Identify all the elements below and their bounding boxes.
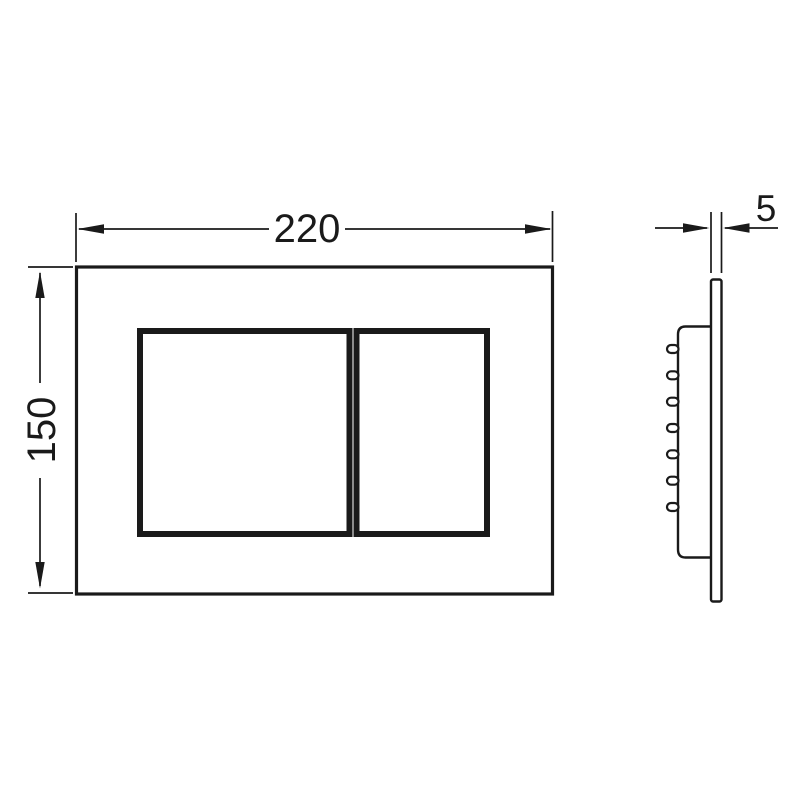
mounting-clip	[667, 477, 679, 485]
flush-plate-drawing: 220 150	[0, 0, 800, 800]
dimension-arrowhead-right	[525, 224, 552, 233]
mounting-bracket	[678, 327, 712, 558]
side-view: 5	[655, 188, 778, 602]
flush-button-small	[357, 331, 488, 534]
mounting-clip	[667, 503, 679, 511]
front-view: 220 150	[20, 207, 553, 594]
mounting-clip	[667, 424, 679, 432]
mounting-clip	[667, 450, 679, 458]
flush-button-large	[140, 331, 350, 534]
dimension-arrowhead-top	[35, 272, 44, 299]
width-dimension-label: 220	[274, 207, 341, 251]
mounting-clip	[667, 371, 679, 379]
plate-side-profile	[711, 280, 722, 602]
mounting-clip	[667, 398, 679, 406]
thickness-dimension-label: 5	[756, 188, 777, 229]
dimension-arrowhead-right	[723, 223, 750, 232]
height-dimension-label: 150	[20, 397, 64, 464]
dimension-arrowhead-left	[78, 224, 105, 233]
mounting-clips	[667, 345, 679, 511]
mounting-clip	[667, 345, 679, 353]
dimension-arrowhead-bottom	[35, 562, 44, 589]
technical-drawing-canvas: 220 150	[0, 0, 800, 800]
dimension-arrowhead-left	[683, 223, 710, 232]
